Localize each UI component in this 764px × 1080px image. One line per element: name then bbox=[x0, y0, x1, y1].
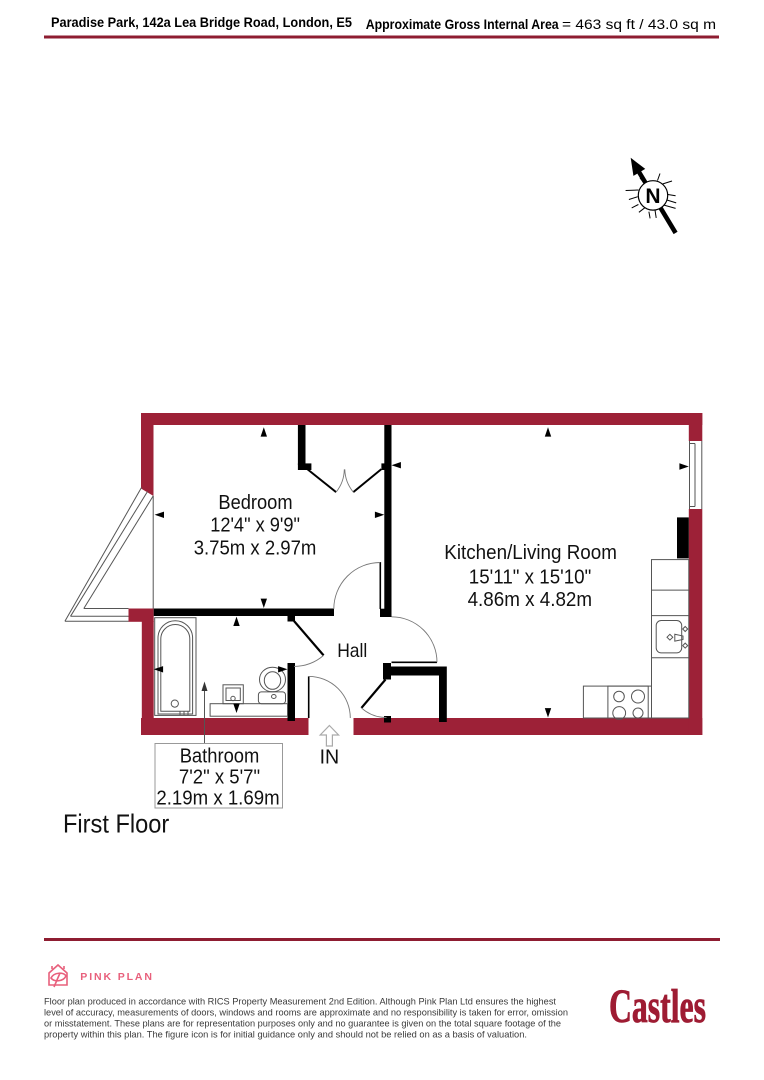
svg-text:PINK PLAN: PINK PLAN bbox=[80, 971, 152, 983]
svg-text:First Floor: First Floor bbox=[63, 809, 170, 839]
svg-text:12'4" x 9'9": 12'4" x 9'9" bbox=[210, 515, 300, 537]
svg-text:Approximate Gross Internal Are: Approximate Gross Internal Area bbox=[366, 17, 559, 32]
svg-text:15'11" x 15'10": 15'11" x 15'10" bbox=[469, 566, 592, 588]
svg-text:Floor plan produced in accorda: Floor plan produced in accordance with R… bbox=[44, 997, 556, 1007]
svg-text:N: N bbox=[645, 185, 660, 208]
svg-text:Bedroom: Bedroom bbox=[218, 492, 292, 514]
svg-text:7'2" x 5'7": 7'2" x 5'7" bbox=[179, 767, 260, 789]
svg-text:3.75m x 2.97m: 3.75m x 2.97m bbox=[194, 538, 317, 560]
svg-text:Hall: Hall bbox=[337, 640, 367, 662]
svg-text:Castles: Castles bbox=[609, 980, 706, 1033]
svg-text:Kitchen/Living Room: Kitchen/Living Room bbox=[444, 542, 617, 564]
svg-text:2.19m x 1.69m: 2.19m x 1.69m bbox=[156, 788, 279, 810]
svg-text:4.86m x 4.82m: 4.86m x 4.82m bbox=[468, 589, 592, 611]
svg-text:IN: IN bbox=[320, 747, 340, 769]
svg-text:level of accuracy, measurement: level of accuracy, measurements of doors… bbox=[44, 1008, 568, 1018]
svg-text:Bathroom: Bathroom bbox=[180, 745, 260, 767]
svg-text:= 463 sq ft / 43.0 sq m: = 463 sq ft / 43.0 sq m bbox=[562, 17, 716, 32]
svg-text:property within this plan. The: property within this plan. The figure ic… bbox=[44, 1029, 527, 1039]
svg-text:or misstatement. These plans a: or misstatement. These plans are for rep… bbox=[44, 1018, 561, 1028]
svg-text:Paradise Park, 142a Lea Bridge: Paradise Park, 142a Lea Bridge Road, Lon… bbox=[51, 15, 352, 30]
